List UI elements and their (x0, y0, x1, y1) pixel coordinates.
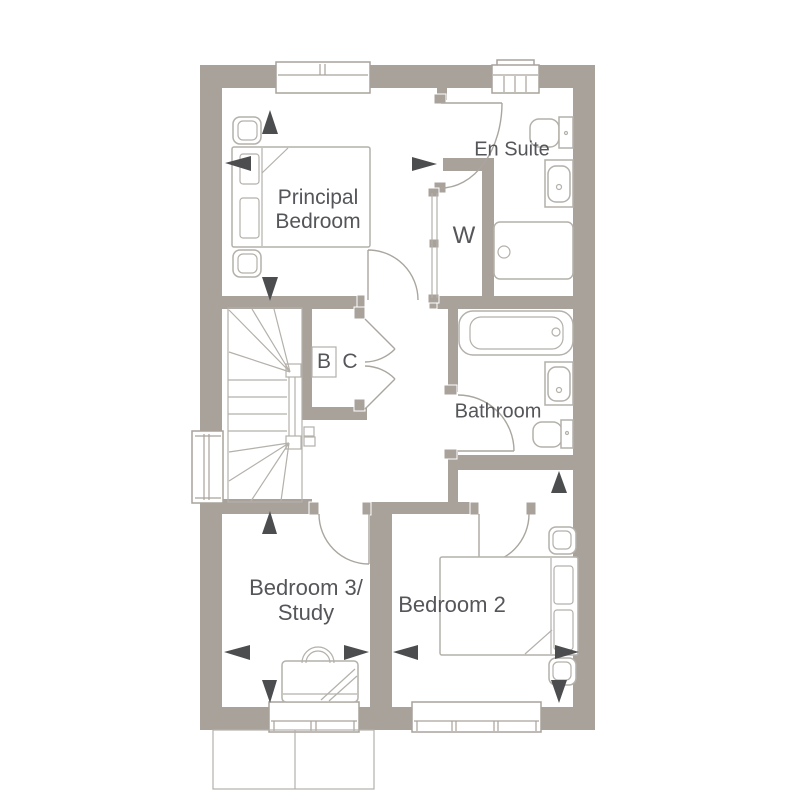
label-principal-bedroom: Principal Bedroom (275, 186, 360, 234)
wall-bathroom-left-upper (448, 309, 458, 392)
arrow-right-icon (344, 645, 369, 660)
shower-en-suite (494, 222, 573, 279)
basin-bathroom (545, 362, 573, 405)
door-post (309, 502, 319, 515)
wall-wardrobe-right (482, 158, 494, 309)
door-post (444, 449, 457, 459)
door-post (354, 399, 365, 411)
desk (282, 661, 358, 702)
arrow-up-icon (262, 110, 278, 134)
floor-plan: Principal Bedroom En Suite W B C Bathroo… (0, 0, 800, 800)
floor-plan-drawing (0, 0, 800, 800)
wall-hall-bottom (392, 502, 472, 514)
arrow-down-icon (551, 680, 567, 703)
label-bedroom-3-line1: Bedroom 3/ (249, 575, 363, 600)
bath (459, 311, 573, 355)
door-principal-bedroom (368, 250, 418, 300)
stairs-boxing (304, 427, 314, 436)
lower-floor-outline (213, 730, 374, 789)
door-post (354, 307, 365, 319)
stairs-winders-top (229, 309, 290, 372)
arrow-down-icon (262, 680, 277, 703)
label-principal-bedroom-line1: Principal (275, 186, 360, 210)
wall-bathroom-bottom (458, 455, 573, 470)
window-stairs (192, 431, 223, 503)
door-post (526, 502, 536, 515)
door-post (362, 502, 371, 515)
arrow-left-icon (393, 645, 418, 660)
window-principal-bedroom (276, 62, 370, 93)
label-en-suite: En Suite (474, 139, 550, 162)
stairs (228, 308, 315, 502)
door-post (444, 385, 457, 395)
label-cupboard: C (342, 350, 357, 374)
basin-en-suite (545, 160, 573, 207)
stairs-boxing (304, 437, 315, 446)
stairs-treads (228, 380, 287, 431)
label-bedroom-3: Bedroom 3/ Study (249, 575, 363, 625)
label-principal-bedroom-line2: Bedroom (275, 210, 360, 234)
label-bedroom-3-line2: Study (249, 600, 363, 625)
window-bedroom-2 (412, 702, 541, 732)
door-post (470, 502, 479, 515)
wall-bedroom-divider (370, 502, 392, 708)
label-bedroom-2: Bedroom 2 (398, 592, 506, 618)
stairs-winders-bottom (229, 443, 289, 501)
label-boiler: B (317, 350, 331, 374)
window-bedroom-3 (269, 702, 359, 732)
window-en-suite (492, 60, 539, 93)
toilet-bathroom (533, 420, 573, 448)
wall-exterior-left (200, 65, 222, 730)
wall-stairs-right (302, 308, 312, 420)
label-bathroom: Bathroom (455, 401, 542, 424)
wall-principal-south-left (222, 296, 363, 309)
bedside-table (549, 527, 576, 554)
door-cupboard-double (365, 319, 395, 409)
arrow-left-icon (224, 645, 250, 660)
wall-under-stairs (222, 499, 312, 514)
arrow-up-icon (262, 511, 277, 534)
label-wardrobe: W (453, 222, 476, 250)
door-bedroom-3 (319, 514, 369, 564)
bedside-table (233, 117, 261, 144)
stairs-outline (228, 308, 302, 502)
arrow-up-icon (551, 471, 567, 493)
wall-principal-south-right (437, 296, 573, 309)
stairs-handrail (289, 377, 295, 436)
arrow-right-icon (412, 157, 437, 171)
bedside-table (233, 250, 261, 277)
